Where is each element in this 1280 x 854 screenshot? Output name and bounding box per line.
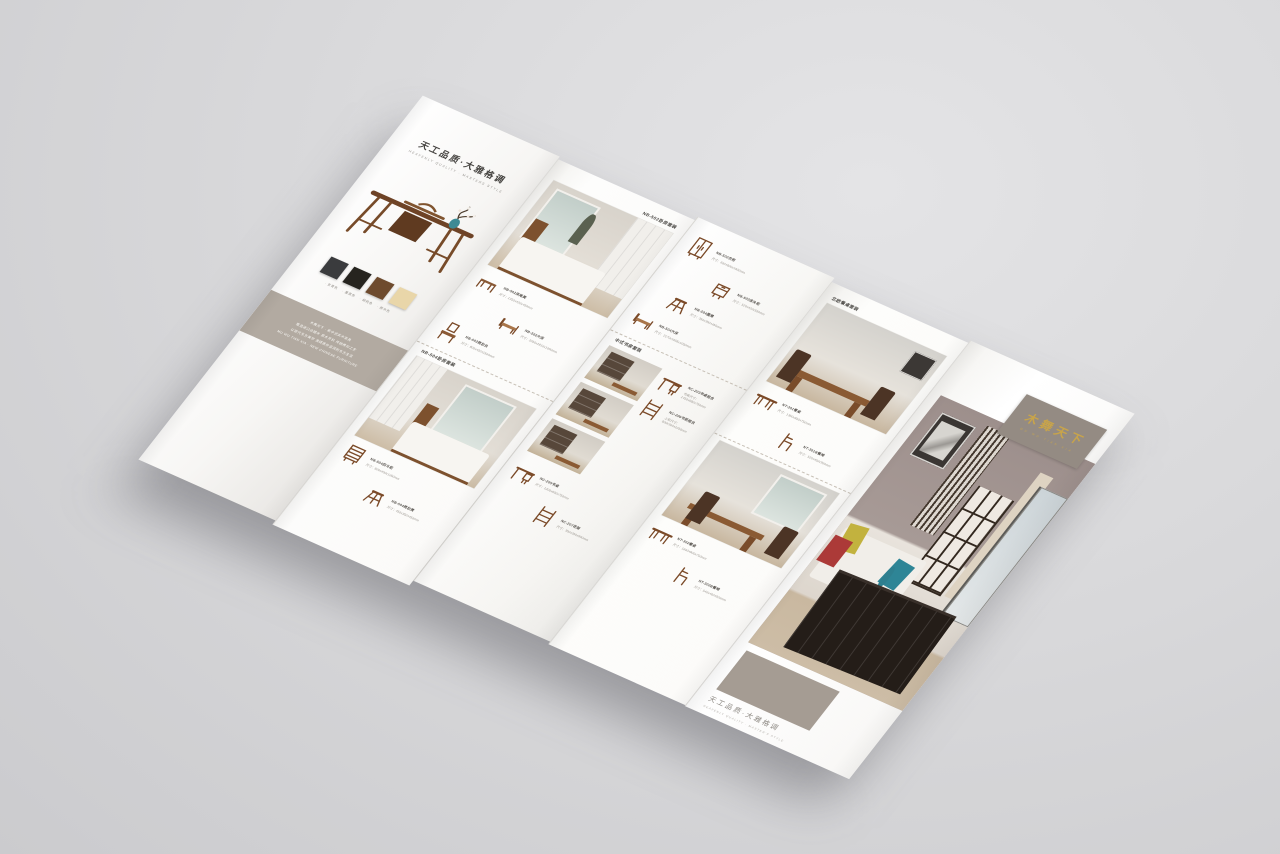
swatch-color [365, 277, 394, 300]
swatch-color [320, 256, 349, 279]
swatch-label: 胡桃色 [358, 296, 374, 306]
swatch-color [388, 287, 417, 310]
swatch-label: 墨黑色 [341, 288, 357, 298]
swatch-label: 原木色 [376, 304, 392, 314]
swatch-color [342, 267, 371, 290]
brochure-sheet: 天工品质·大雅格调 HEAVENLY QUALITY · MASTERS STY… [137, 94, 1136, 778]
intro-line: 甄选进口白蜡木 原木开料 传统榫卯工艺 [264, 308, 389, 367]
writing-desk-illustration [334, 166, 496, 281]
swatch-label: 玄青色 [324, 281, 340, 291]
studio-backdrop: 天工品质·大雅格调 HEAVENLY QUALITY · MASTERS STY… [0, 0, 1280, 854]
